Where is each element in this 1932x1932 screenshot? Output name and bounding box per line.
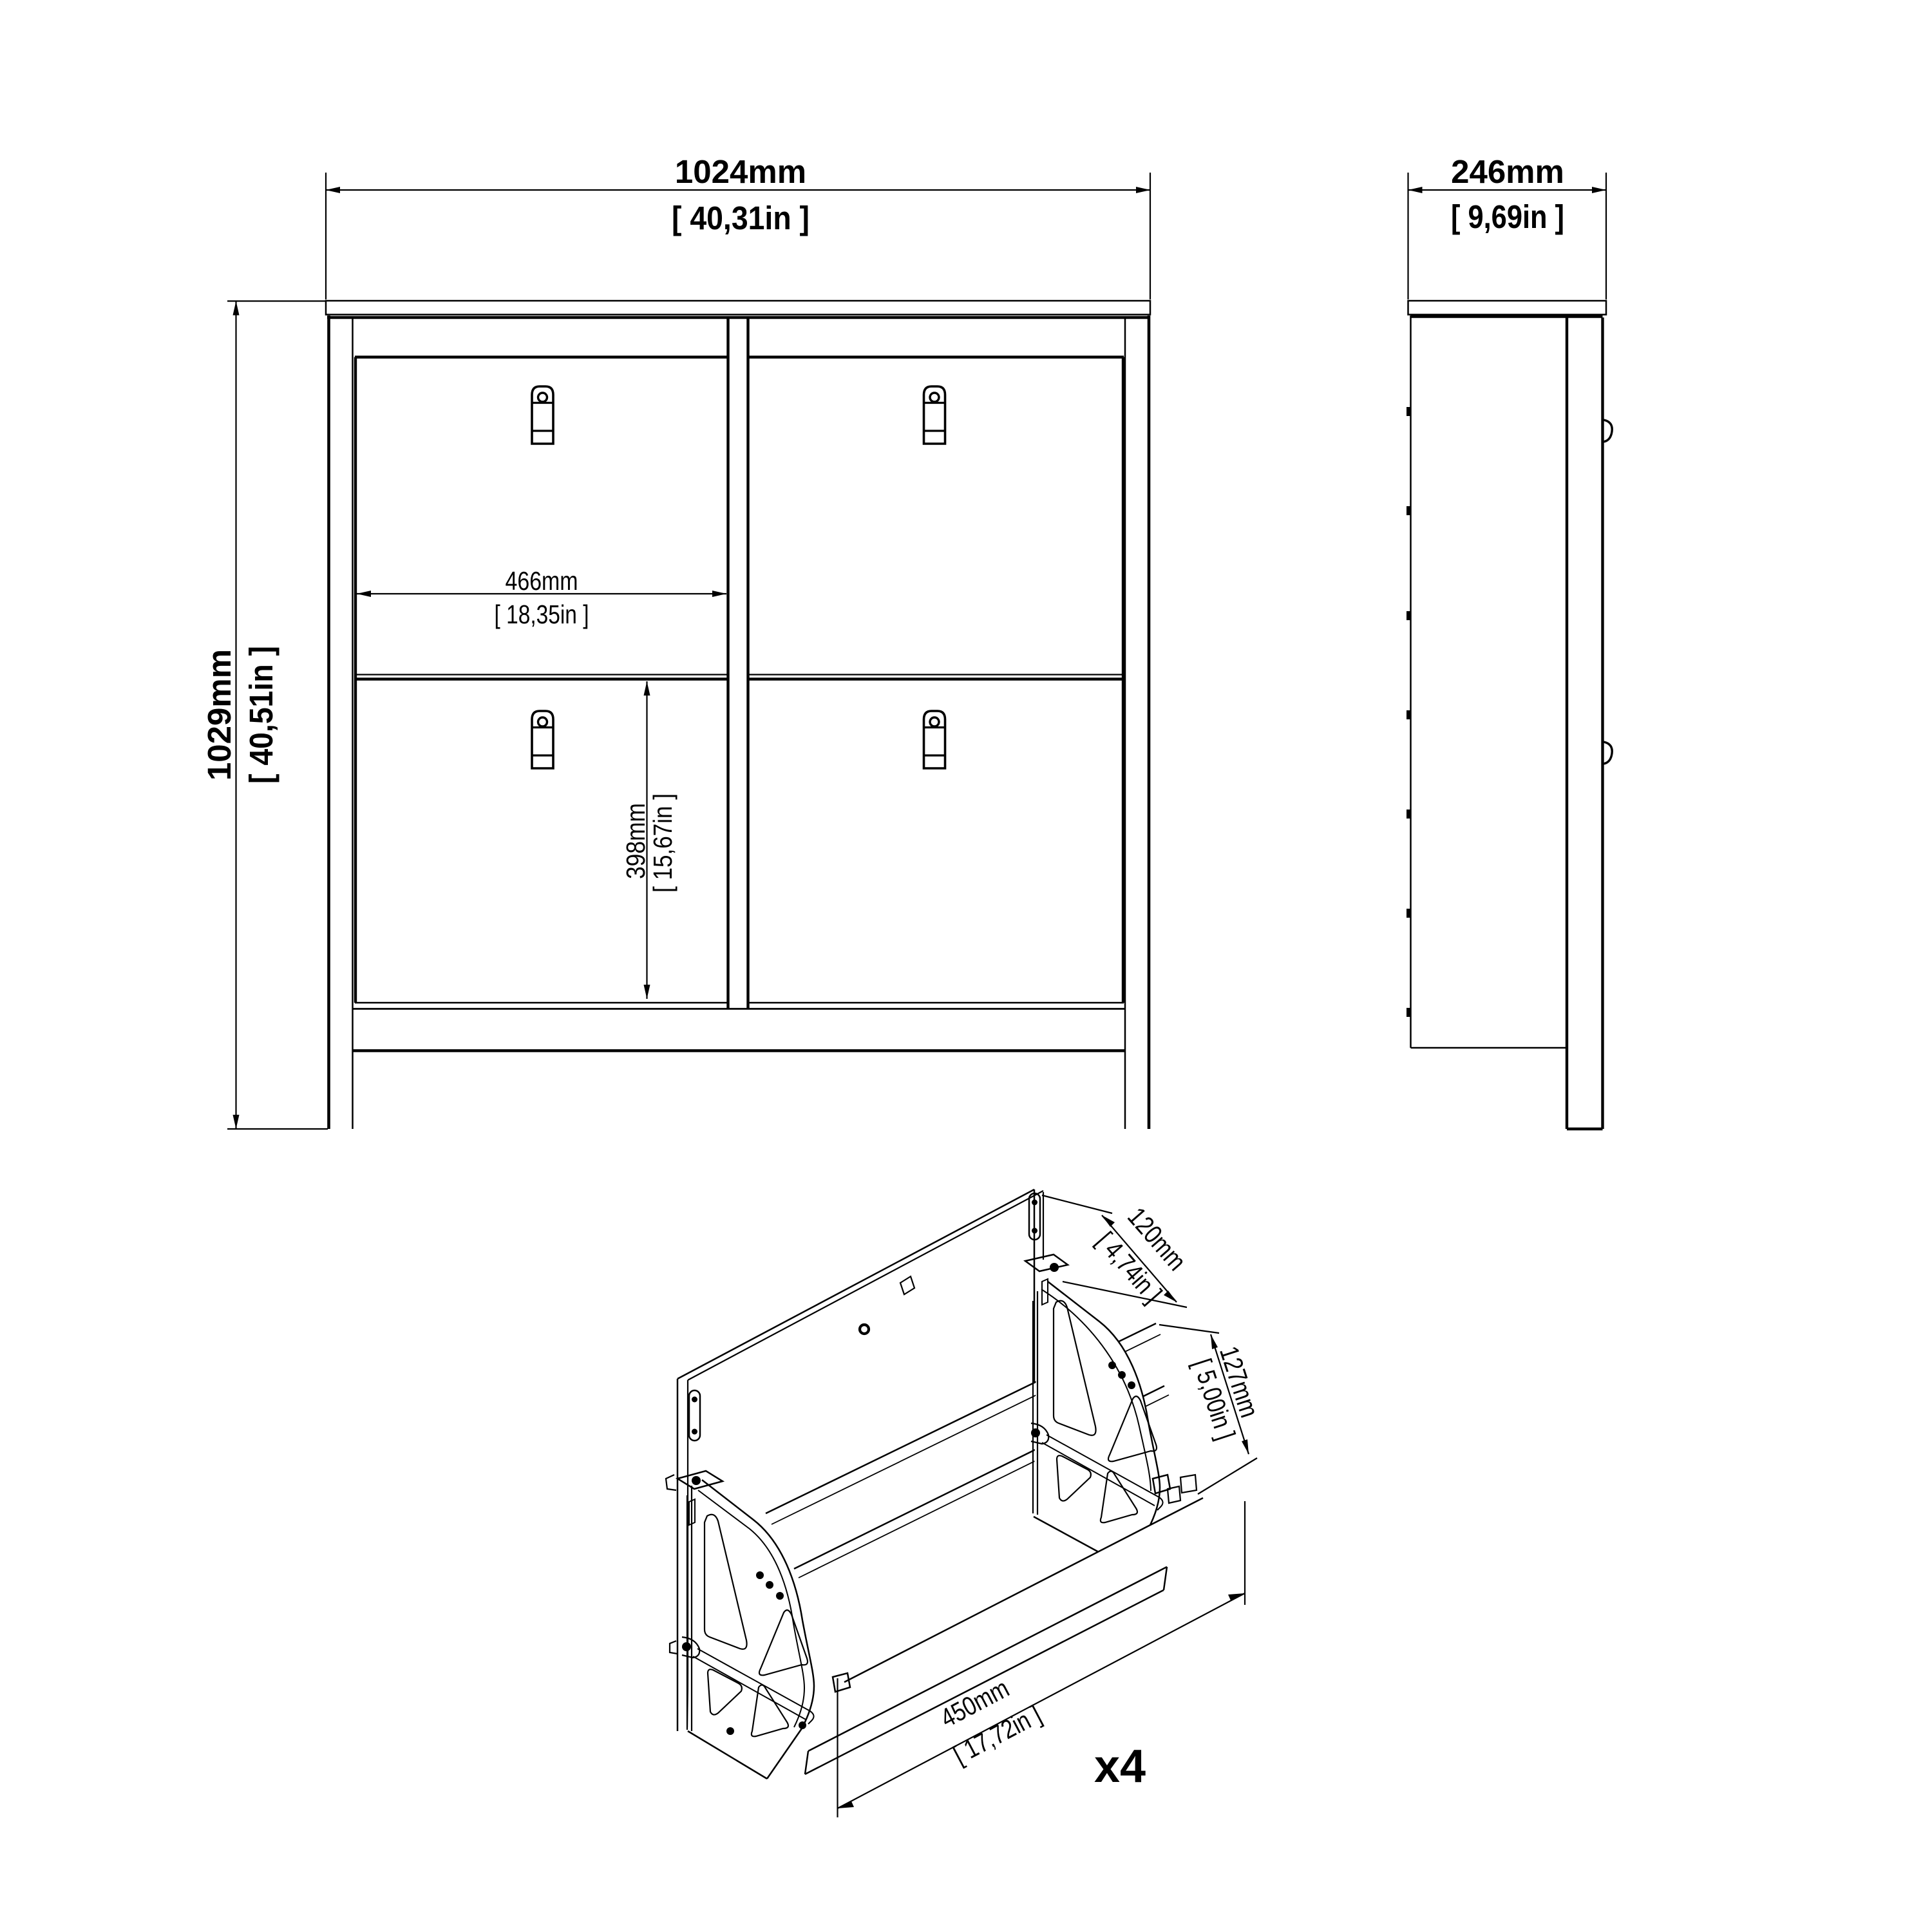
svg-text:x4: x4 xyxy=(1094,1741,1146,1792)
svg-text:398mm: 398mm xyxy=(621,803,650,879)
svg-text:466mm: 466mm xyxy=(506,566,578,596)
svg-text:[ 15,67in ]: [ 15,67in ] xyxy=(648,793,677,893)
svg-text:1024mm: 1024mm xyxy=(675,153,806,190)
svg-text:[ 40,31in ]: [ 40,31in ] xyxy=(672,200,810,236)
svg-text:[ 18,35in ]: [ 18,35in ] xyxy=(495,600,589,629)
svg-text:[ 40,51in ]: [ 40,51in ] xyxy=(243,646,279,784)
svg-text:246mm: 246mm xyxy=(1451,153,1564,190)
svg-text:1029mm: 1029mm xyxy=(201,649,238,781)
svg-text:[ 9,69in ]: [ 9,69in ] xyxy=(1451,198,1564,235)
